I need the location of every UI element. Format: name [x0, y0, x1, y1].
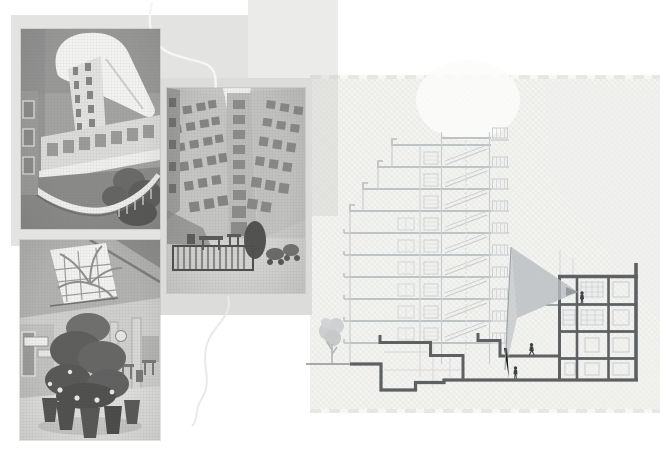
round-sign	[116, 331, 127, 342]
paper-perforated-edge-bottom	[310, 409, 660, 413]
paper-perforated-edge-top	[310, 75, 660, 79]
tracing-paper-band	[310, 75, 660, 413]
shop-sign	[24, 337, 48, 346]
lightwell-photo	[167, 88, 305, 293]
atrium-plants-photo	[20, 240, 160, 440]
collage-board	[0, 0, 660, 467]
far-left-wall	[167, 88, 180, 220]
courtyard-fisheye-art	[21, 29, 160, 229]
squiggle-line-lower	[192, 296, 229, 426]
dark-shrub	[244, 221, 266, 259]
courtyard-fisheye-photo	[21, 29, 160, 229]
lightwell-art	[167, 88, 305, 293]
centre-windows	[231, 100, 247, 236]
atrium-art	[20, 240, 160, 440]
